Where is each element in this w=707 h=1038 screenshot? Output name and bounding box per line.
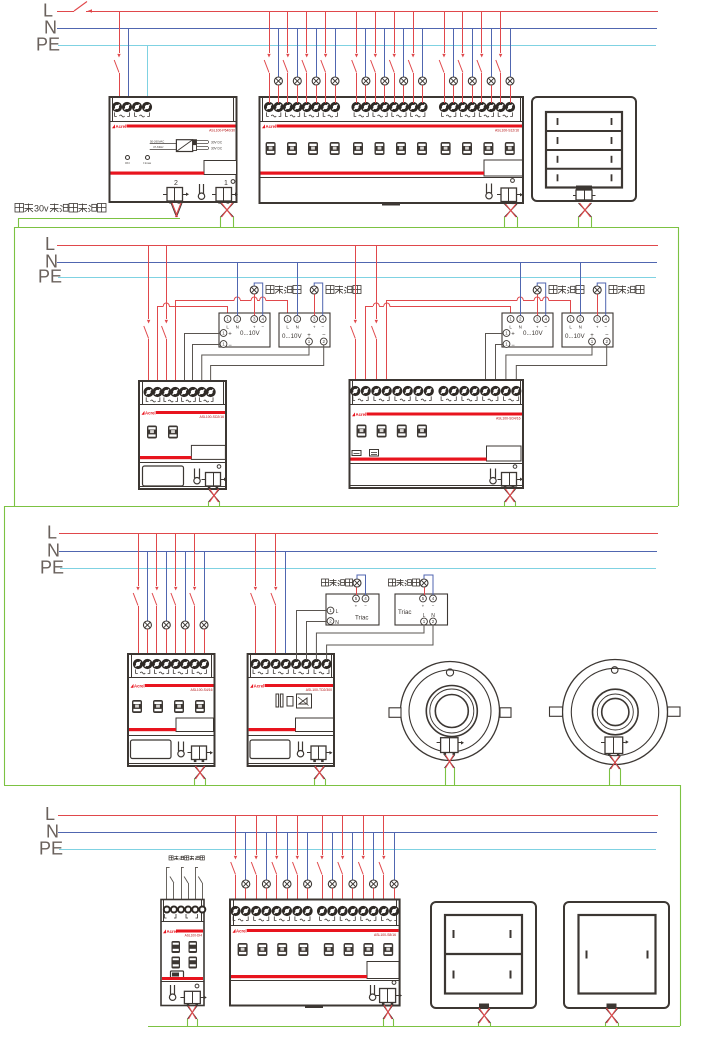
svg-text:−: − — [544, 324, 547, 329]
svg-text:−: − — [364, 603, 367, 608]
svg-text:ASL100-S12/16: ASL100-S12/16 — [495, 129, 519, 133]
svg-text:PE: PE — [40, 558, 64, 578]
svg-text:−: − — [605, 333, 609, 339]
svg-text:+: + — [355, 604, 358, 609]
svg-text:ON: ON — [125, 161, 130, 165]
svg-text:Acrel: Acrel — [236, 928, 247, 933]
svg-text:ASL100-SD2/16: ASL100-SD2/16 — [199, 415, 224, 419]
svg-text:+: + — [511, 332, 515, 338]
svg-text:L: L — [47, 523, 57, 543]
svg-text:0...10V: 0...10V — [282, 333, 302, 340]
svg-text:−: − — [322, 333, 326, 339]
svg-text:+: + — [228, 332, 232, 338]
svg-text:ASL100-DI4: ASL100-DI4 — [185, 934, 203, 938]
svg-text:+: + — [253, 325, 256, 330]
svg-text:Triac: Triac — [355, 615, 369, 622]
svg-text:+: + — [596, 325, 599, 330]
svg-text:Triac: Triac — [398, 609, 412, 616]
svg-text:0...10V: 0...10V — [523, 330, 543, 337]
svg-text:30v: 30v — [34, 204, 49, 214]
svg-text:PE: PE — [36, 35, 60, 55]
svg-text:0...10V: 0...10V — [565, 333, 585, 340]
svg-text:+: + — [313, 325, 316, 330]
svg-text:1: 1 — [224, 180, 228, 187]
svg-text:−: − — [511, 343, 515, 349]
svg-text:Acrel: Acrel — [167, 929, 178, 934]
svg-text:47-63Hz: 47-63Hz — [153, 145, 164, 149]
svg-text:N: N — [236, 325, 239, 330]
svg-text:N: N — [296, 325, 299, 330]
svg-text:N: N — [579, 325, 582, 330]
svg-text:ASL100-SD4/16: ASL100-SD4/16 — [496, 417, 521, 421]
svg-text:+: + — [536, 325, 539, 330]
svg-text:Acrel: Acrel — [356, 412, 367, 417]
svg-text:ASL100-S8/16: ASL100-S8/16 — [374, 933, 396, 937]
svg-text:30V DC: 30V DC — [211, 140, 223, 144]
svg-text:Acrel: Acrel — [116, 124, 127, 129]
svg-text:PE: PE — [39, 839, 63, 859]
svg-text:ASL100-P640/30: ASL100-P640/30 — [209, 129, 235, 133]
svg-text:PE: PE — [38, 267, 62, 287]
svg-text:I Imax: I Imax — [143, 161, 152, 165]
svg-text:L: L — [336, 609, 339, 615]
svg-text:N: N — [335, 620, 339, 626]
svg-text:Acrel: Acrel — [266, 124, 277, 129]
svg-text:−: − — [321, 324, 324, 329]
svg-text:−: − — [228, 343, 232, 349]
svg-text:−: − — [261, 324, 264, 329]
svg-text:50-260VAC: 50-260VAC — [150, 139, 164, 143]
svg-text:30V DC: 30V DC — [211, 147, 223, 151]
svg-text:−: − — [604, 324, 607, 329]
svg-text:ASL100-S4/16: ASL100-S4/16 — [190, 688, 212, 692]
svg-text:2: 2 — [174, 180, 178, 187]
svg-text:N: N — [519, 325, 522, 330]
svg-text:+: + — [422, 604, 425, 609]
svg-text:Acrel: Acrel — [254, 683, 265, 688]
svg-text:Acrel: Acrel — [145, 410, 156, 415]
svg-text:0...10V: 0...10V — [240, 330, 260, 337]
svg-text:−: − — [432, 603, 435, 608]
svg-text:Acrel: Acrel — [134, 683, 145, 688]
svg-text:ASL100-TD2/300: ASL100-TD2/300 — [306, 688, 332, 692]
